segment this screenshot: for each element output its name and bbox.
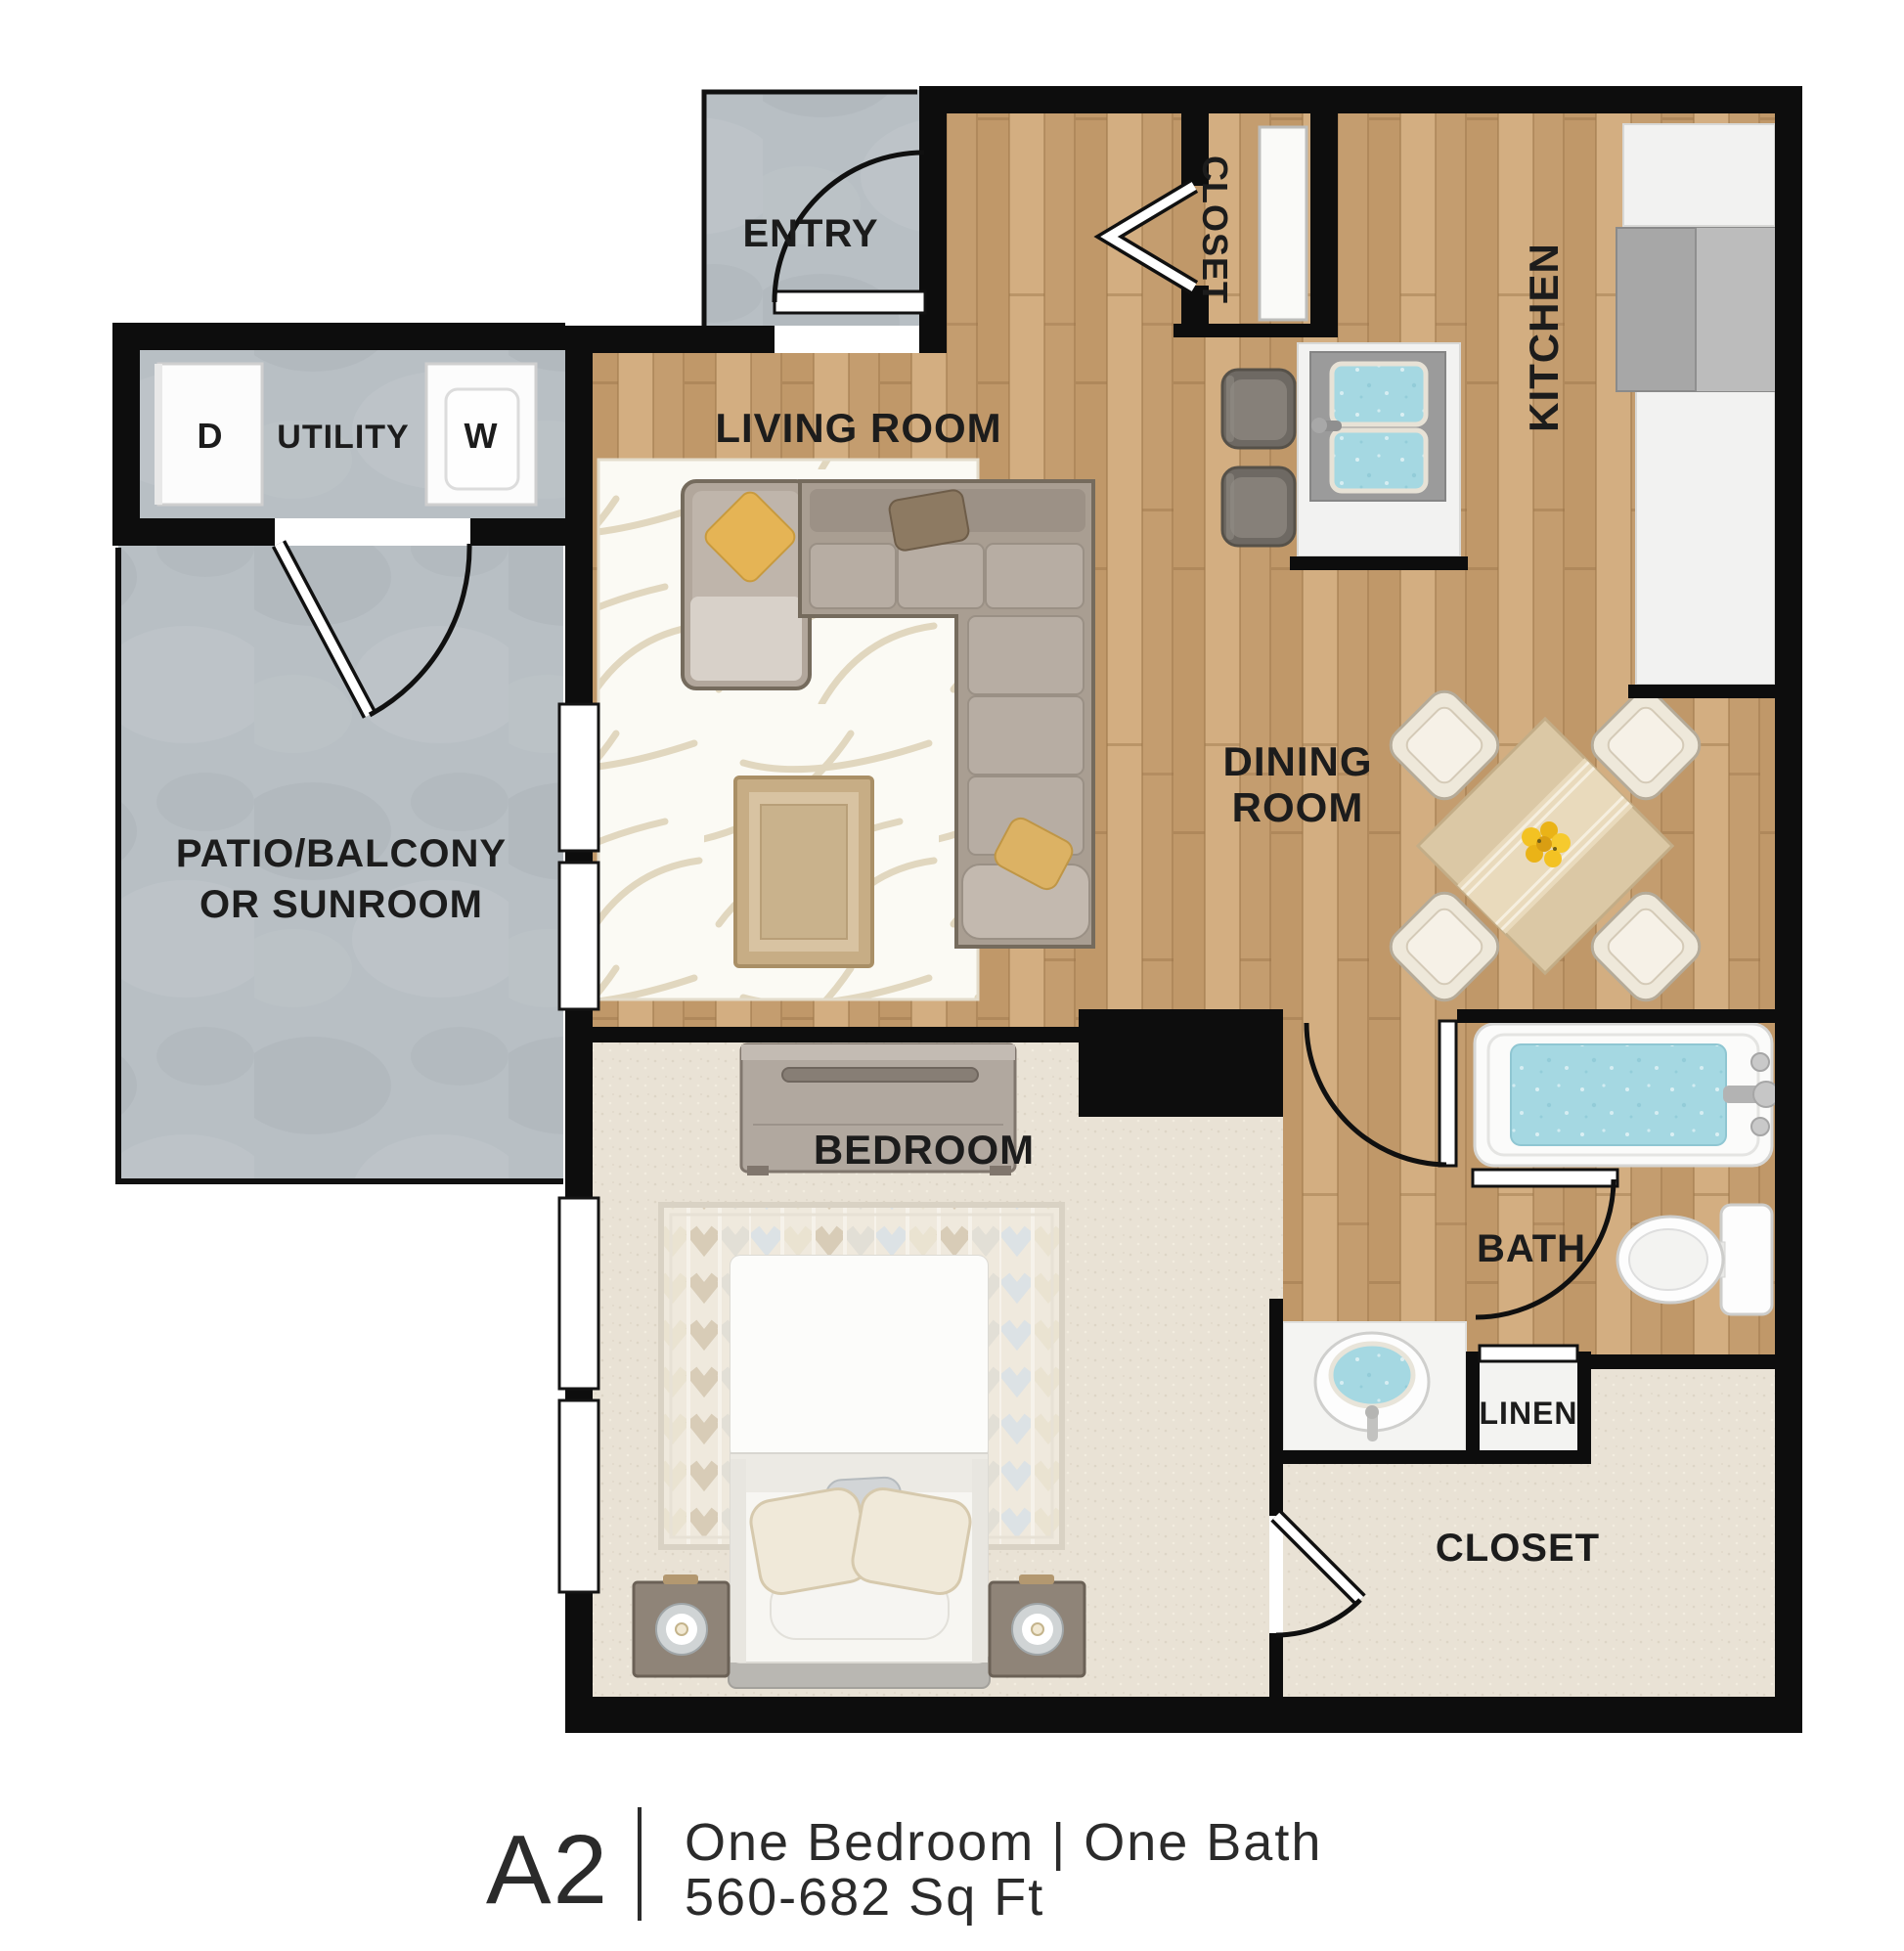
wall-closet-right: [1310, 113, 1338, 337]
caption-line1: One Bedroom | One Bath: [685, 1813, 1322, 1872]
caption-unit-code: A2: [486, 1815, 609, 1925]
bathtub: [1475, 1024, 1779, 1166]
bed-pillow: [748, 1485, 872, 1597]
wall-living-top: [565, 326, 775, 353]
wall-top: [919, 86, 1802, 113]
wall-closet-divider: [1269, 1633, 1283, 1697]
label-closet-main: CLOSET: [1436, 1527, 1600, 1570]
wall-utility-bottom-a: [112, 518, 275, 546]
wall-utility-top: [112, 323, 565, 350]
sofa-cushion: [898, 544, 984, 608]
tub-pony-wall: [1473, 1170, 1617, 1186]
wall-block: [1079, 1009, 1283, 1117]
label-utility: UTILITY: [277, 419, 409, 456]
label-dining-line2: ROOM: [1232, 784, 1364, 830]
lamp: [1012, 1604, 1063, 1655]
wall-porch-right: [919, 113, 947, 353]
bed: [729, 1256, 990, 1688]
wall-vanity-bottom: [1269, 1450, 1480, 1464]
label-linen: LINEN: [1480, 1396, 1578, 1431]
label-closet-top: CLOSET: [1195, 155, 1235, 304]
bath-door-leaf: [1439, 1021, 1456, 1166]
kitchen-counter-top: [1623, 124, 1775, 226]
wall-utility-left: [112, 323, 140, 546]
wall-counter-end: [1628, 685, 1775, 698]
label-entry: ENTRY: [742, 212, 878, 255]
sofa-cushion: [810, 544, 896, 608]
lamp: [656, 1604, 707, 1655]
dresser-handle: [782, 1068, 978, 1082]
bar-stool: [1222, 467, 1295, 546]
kitchen-counter-right: [1636, 391, 1775, 685]
kitchen-sink: [1310, 352, 1445, 501]
wall-bedroom-top: [593, 1027, 1079, 1042]
wall-bath-top: [1457, 1009, 1775, 1023]
coffee-table: [735, 777, 872, 966]
window: [559, 863, 598, 1009]
floorplan-page: ENTRY LIVING ROOM CLOSET KITCHEN DINING …: [0, 0, 1904, 1951]
wall-peninsula-end: [1290, 556, 1468, 570]
refrigerator: [1616, 228, 1775, 391]
caption-line2: 560-682 Sq Ft: [685, 1868, 1044, 1927]
sofa-cushion: [968, 616, 1084, 694]
bedroom-floor-sliver: [1269, 1117, 1283, 1299]
sofa-cushion: [968, 696, 1084, 775]
wall-utility-bottom-b: [470, 518, 565, 546]
label-bedroom: BEDROOM: [814, 1127, 1035, 1173]
window: [559, 704, 598, 851]
wall-bottom: [565, 1697, 1802, 1733]
wall-right: [1775, 86, 1802, 1733]
label-bath: BATH: [1477, 1227, 1586, 1270]
caption-divider: [638, 1807, 642, 1921]
window: [559, 1400, 598, 1592]
closet-main-floor: [1283, 1464, 1775, 1697]
nightstand-left: [634, 1574, 729, 1676]
wall-linen-bottom: [1466, 1450, 1591, 1464]
dining-set: [1384, 685, 1706, 1007]
floorplan-a2: ENTRY LIVING ROOM CLOSET KITCHEN DINING …: [0, 0, 1904, 1951]
caption: A2 One Bedroom | One Bath 560-682 Sq Ft: [486, 1807, 1323, 1927]
wall-linen-left: [1466, 1352, 1480, 1464]
window: [559, 1198, 598, 1389]
label-kitchen: KITCHEN: [1521, 243, 1567, 432]
label-patio-line2: OR SUNROOM: [199, 883, 483, 926]
label-living-room: LIVING ROOM: [715, 405, 1001, 451]
bar-stool: [1222, 370, 1295, 448]
label-dining-line1: DINING: [1223, 738, 1373, 784]
wall-bath-bottom: [1591, 1354, 1802, 1369]
sofa-chaise-throw: [690, 597, 802, 681]
sofa-cushion: [986, 544, 1084, 608]
entry-door-leaf: [775, 291, 925, 313]
label-dryer: D: [198, 416, 224, 456]
label-washer: W: [465, 416, 499, 456]
bed-pillow: [850, 1485, 974, 1597]
label-patio-line1: PATIO/BALCONY: [176, 832, 507, 875]
closet-notch-floor: [1591, 1369, 1775, 1464]
nightstand-right: [990, 1574, 1085, 1676]
closet-shelf: [1260, 127, 1306, 320]
wall-vanity-left: [1269, 1299, 1283, 1516]
wall-linen-right: [1577, 1352, 1591, 1464]
linen-door-leaf: [1480, 1346, 1577, 1361]
